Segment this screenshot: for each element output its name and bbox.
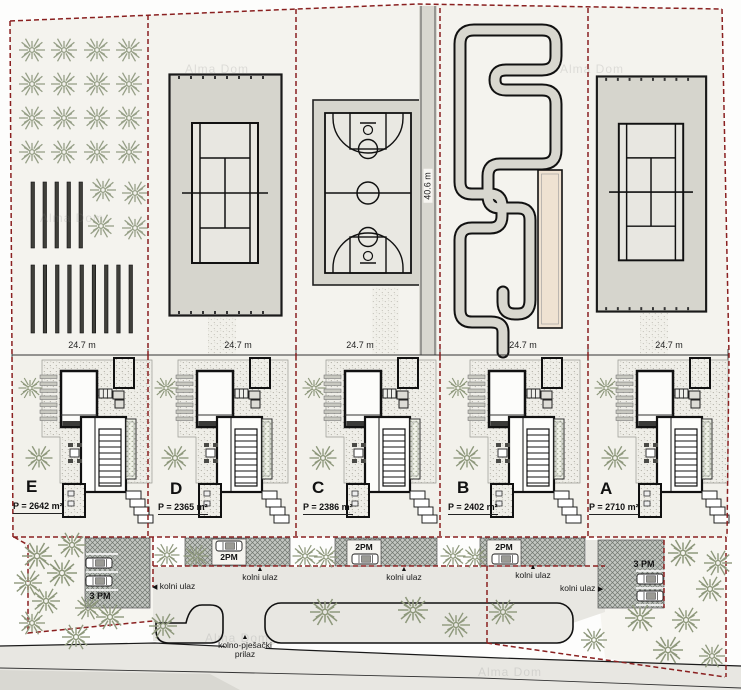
watermark: Alma Dom: [560, 63, 624, 75]
parking-plot-c: [335, 538, 437, 566]
plot-label-e: E: [26, 478, 37, 495]
parking-label-b: 2PM: [495, 543, 512, 552]
parking-label-d: 2PM: [220, 553, 237, 562]
car-icon: [637, 574, 663, 584]
plot-label-b: B: [457, 479, 469, 496]
tennis-court-plot-d: [170, 75, 282, 316]
plot-label-c: C: [312, 479, 324, 496]
plot-area-b: P = 2402 m²: [448, 503, 498, 515]
parking-label-c: 2PM: [355, 543, 372, 552]
car-icon: [86, 576, 112, 586]
entrance-text-d: kolni ulaz: [242, 572, 277, 582]
parking-label-a: 3 PM: [633, 560, 654, 569]
road-island-east: [265, 603, 573, 643]
car-icon: [216, 541, 242, 551]
entrance-label-e: ◀ kolni ulaz: [152, 582, 195, 591]
watermark: Alma Dom: [40, 212, 104, 224]
entrance-arrow-a-icon: ▶: [598, 586, 603, 593]
entrance-label-d: ▲ kolni ulaz: [242, 566, 277, 582]
car-icon: [352, 554, 378, 564]
site-plan-canvas: Alma Dom Alma Dom Alma Dom Alma Dom Alma…: [0, 0, 741, 690]
car-icon: [86, 558, 112, 568]
plot-label-d: D: [170, 480, 182, 497]
plot-area-a: P = 2710 m²: [589, 503, 639, 515]
depth-label: 40.6 m: [424, 169, 433, 203]
width-label-plot-e: 24.7 m: [68, 341, 96, 350]
width-label-plot-a: 24.7 m: [655, 341, 683, 350]
plot-label-a: A: [600, 480, 612, 497]
plot-area-e: P = 2642 m²: [13, 502, 63, 514]
access-road-label: ▲ kolno-pješački prilaz: [218, 634, 272, 658]
gravel-path: [372, 287, 399, 355]
entrance-label-a: kolni ulaz ▶: [560, 584, 603, 593]
watermark: Alma Dom: [478, 666, 542, 678]
parking-label-e: 3 PM: [89, 592, 110, 601]
parking-plot-a: [598, 540, 666, 608]
entrance-arrow-e-icon: ◀: [152, 584, 157, 591]
plot-area-d: P = 2365 m²: [158, 503, 208, 515]
car-icon: [492, 554, 518, 564]
tennis-court-plot-a: [597, 76, 706, 311]
entrance-text-b: kolni ulaz: [515, 570, 550, 580]
basketball-court-plot-c: [313, 100, 423, 285]
entrance-label-b: ▲ kolni ulaz: [515, 564, 550, 580]
width-label-plot-c: 24.7 m: [346, 341, 374, 350]
car-icon: [637, 591, 663, 601]
entrance-text-c: kolni ulaz: [386, 572, 421, 582]
width-label-plot-b: 24.7 m: [509, 341, 537, 350]
access-text-line2: prilaz: [235, 649, 255, 659]
entrance-text-e: kolni ulaz: [160, 581, 195, 591]
entrance-text-a: kolni ulaz: [560, 583, 595, 593]
plot-area-c: P = 2386 m²: [303, 503, 353, 515]
width-label-plot-d: 24.7 m: [224, 341, 252, 350]
entrance-label-c: ▲ kolni ulaz: [386, 566, 421, 582]
watermark: Alma Dom: [185, 63, 249, 75]
